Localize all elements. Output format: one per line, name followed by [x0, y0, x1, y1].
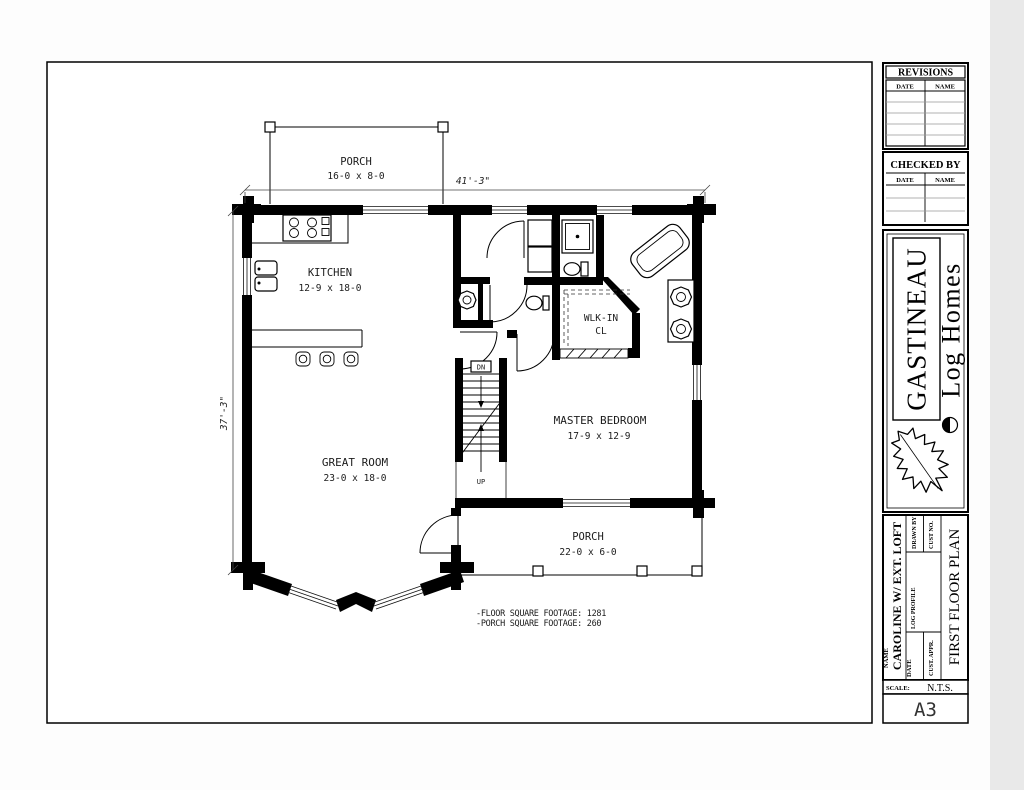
cust-appr-label: CUST. APPR.	[929, 640, 935, 676]
drawing-sheet-page: DN UP 41'-3" 37'-3" PORCH 16-0 x 8-0	[0, 0, 1024, 790]
drawn-by-label: DRAWN BY	[912, 516, 918, 549]
scale-label: SCALE:	[886, 685, 910, 692]
date-label: DATE	[906, 659, 913, 677]
dryer	[528, 247, 552, 272]
project-info-block: NAME CAROLINE W/ EXT. LOFT DATE DRAWN BY…	[883, 515, 968, 680]
toilet-half-bath	[526, 296, 549, 310]
stairs-up-label: UP	[477, 478, 485, 486]
sheet-number-box: A3	[883, 694, 968, 723]
checked-name-col: NAME	[935, 177, 955, 184]
stove	[283, 215, 331, 241]
porch-post	[637, 566, 647, 576]
room-label-porch-bottom: PORCH	[572, 531, 604, 543]
square-footage-notes: -FLOOR SQUARE FOOTAGE: 1281 -PORCH SQUAR…	[476, 609, 606, 629]
room-label-kitchen: KITCHEN	[308, 267, 352, 279]
log-profile-label: LOG PROFILE	[911, 587, 917, 629]
washer	[528, 220, 552, 246]
title-block: REVISIONS DATE NAME CHECKED BY DATE NAME	[878, 63, 968, 723]
porch-post	[692, 566, 702, 576]
logo-brand-text: GASTINEAU	[902, 247, 932, 411]
revisions-title: REVISIONS	[898, 68, 953, 79]
checked-date-col: DATE	[896, 177, 914, 184]
toilet-master	[564, 262, 588, 276]
page-edge-shading	[990, 0, 1024, 790]
floor-plan-drawing: DN UP 41'-3" 37'-3" PORCH 16-0 x 8-0	[0, 0, 1024, 790]
name-label: NAME	[883, 648, 890, 668]
logo-panel: GASTINEAU Log Homes	[878, 230, 968, 512]
dim-width-label: 41'-3"	[456, 176, 490, 187]
porch-post	[265, 122, 275, 132]
room-dims-master-bedroom: 17-9 x 12-9	[568, 431, 631, 442]
sink-half-bath	[458, 291, 476, 309]
logo-tagline-text: Log Homes	[937, 262, 966, 398]
revisions-date-col: DATE	[896, 84, 914, 91]
checked-by-table: CHECKED BY DATE NAME	[883, 152, 968, 225]
room-label-walkin: WLK-IN	[584, 313, 619, 324]
sheet-title: FIRST FLOOR PLAN	[947, 529, 963, 666]
sheet-number: A3	[914, 699, 937, 721]
room-dims-porch-top: 16-0 x 8-0	[327, 171, 384, 182]
project-name: CAROLINE W/ EXT. LOFT	[890, 522, 904, 670]
room-label-master-bedroom: MASTER BEDROOM	[554, 414, 647, 427]
stairs-dn-label: DN	[477, 364, 485, 372]
shower	[562, 220, 593, 253]
acorn-icon	[943, 418, 958, 433]
dim-height-label: 37'-3"	[219, 396, 230, 431]
revisions-table: REVISIONS DATE NAME	[883, 63, 968, 149]
room-dims-porch-bottom: 22-0 x 6-0	[559, 547, 616, 558]
scale-row: SCALE: N.T.S.	[883, 680, 968, 694]
scale-value: N.T.S.	[927, 683, 953, 694]
room-dims-kitchen: 12-9 x 18-0	[299, 283, 362, 294]
note-floor-sqft: -FLOOR SQUARE FOOTAGE: 1281	[476, 609, 606, 619]
revisions-name-col: NAME	[935, 84, 955, 91]
porch-post	[533, 566, 543, 576]
porch-post	[438, 122, 448, 132]
note-porch-sqft: -PORCH SQUARE FOOTAGE: 260	[476, 619, 601, 629]
room-label-porch-top: PORCH	[340, 156, 372, 168]
cust-no-label: CUST NO.	[929, 521, 935, 549]
checked-by-title: CHECKED BY	[890, 160, 961, 171]
room-dims-great-room: 23-0 x 18-0	[324, 473, 387, 484]
double-vanity	[668, 280, 694, 342]
room-label-great-room: GREAT ROOM	[322, 456, 389, 469]
room-label-walkin-2: CL	[595, 326, 607, 337]
